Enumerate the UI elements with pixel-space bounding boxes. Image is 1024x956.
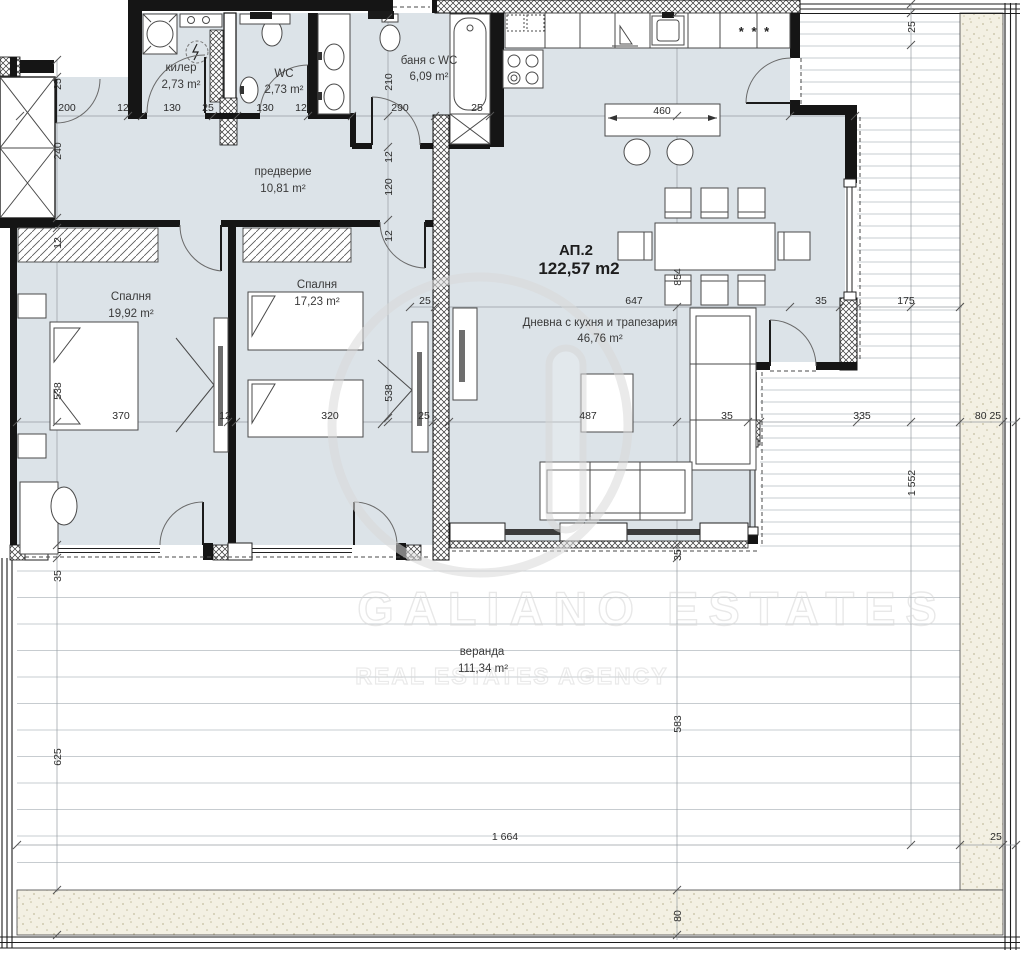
bath-vanity — [318, 14, 350, 114]
wardrobe-bedroom1 — [18, 228, 158, 262]
dim-label: 335 — [853, 410, 871, 422]
dim-label: 25 — [906, 21, 918, 33]
dim-label: 35 — [815, 295, 827, 307]
dim-label: 583 — [672, 715, 684, 733]
dim-label: 130 — [256, 102, 274, 114]
dim-label: 35 — [672, 549, 684, 561]
dim-label: 25 — [471, 102, 483, 114]
dim-label: 370 — [112, 410, 130, 422]
watermark-brand: GALIANO ESTATES — [357, 582, 947, 635]
watermark-tagline: REAL ESTATES AGENCY — [355, 663, 668, 689]
stair-shaft — [0, 77, 55, 228]
dim-label: 12 — [219, 410, 231, 422]
room-area-veranda: 111,34 m² — [458, 663, 508, 675]
room-area-bathroom: 6,09 m² — [410, 71, 449, 83]
room-name-storage: килер — [166, 62, 197, 74]
floor-plan-drawing: * * * — [0, 0, 1024, 956]
dim-label: 80 25 — [975, 410, 1001, 422]
dim-label: 25 — [990, 831, 1002, 843]
shower-box-icon — [450, 114, 490, 144]
room-name-veranda: веранда — [460, 646, 505, 658]
dim-label: 35 — [52, 570, 64, 582]
dim-label: 1 664 — [492, 831, 518, 843]
dim-label: 625 — [52, 748, 64, 766]
dim-label: 25 — [52, 78, 64, 90]
dim-label: 1 552 — [906, 470, 918, 496]
dim-label: 210 — [383, 73, 395, 91]
washing-machine-icon — [143, 14, 177, 54]
room-name-living: Дневна с кухня и трапезария — [523, 317, 678, 329]
cooktop-icon — [503, 50, 543, 88]
room-area-hallway: 10,81 m² — [260, 183, 306, 195]
dim-label: 200 — [58, 102, 76, 114]
dim-label: 538 — [52, 382, 64, 400]
dim-label: 647 — [625, 295, 643, 307]
dim-label: 120 — [383, 178, 395, 196]
wardrobe-bedroom2 — [243, 228, 351, 262]
bath-toilet-icon — [380, 14, 400, 51]
floor-plan-page: * * * — [0, 0, 1024, 956]
dim-label: 12 — [295, 102, 307, 114]
dim-label: 487 — [579, 410, 597, 422]
dim-label: 80 — [672, 910, 684, 922]
freezer-stars: * * * — [739, 24, 771, 39]
room-name-bedroom2: Спалня — [297, 279, 337, 291]
logo-one-bar — [549, 348, 583, 530]
room-area-wc: 2,73 m² — [265, 84, 304, 96]
bath-fixture — [368, 11, 394, 19]
wc-cistern-icon — [250, 12, 272, 19]
room-area-living: 46,76 m² — [577, 333, 623, 345]
dim-label: 538 — [383, 384, 395, 402]
dim-label: 290 — [391, 102, 409, 114]
room-area-storage: 2,73 m² — [162, 79, 201, 91]
room-name-bedroom1: Спалня — [111, 291, 151, 303]
room-name-bathroom: баня с WC — [401, 55, 458, 67]
storage-counter — [180, 14, 222, 27]
dim-label: 12 — [383, 230, 395, 242]
dim-label: 35 — [721, 410, 733, 422]
kitchen-sink-icon — [652, 12, 684, 45]
dim-label: 854 — [672, 268, 684, 286]
room-area-bedroom1: 19,92 m² — [108, 308, 154, 320]
bed-single-b — [248, 380, 363, 437]
dim-label: 130 — [163, 102, 181, 114]
room-name-hallway: предверие — [254, 166, 311, 178]
dim-label: 320 — [321, 410, 339, 422]
room-name-wc: WC — [274, 68, 293, 80]
living-tv-panel — [453, 308, 477, 400]
dim-label: 12 — [52, 237, 64, 249]
dim-label: 25 — [418, 410, 430, 422]
dim-label: 12 — [383, 151, 395, 163]
dim-label: 240 — [52, 142, 64, 160]
dim-label: 460 — [653, 105, 671, 117]
unit-area: 122,57 m2 — [538, 259, 619, 278]
dim-label: 175 — [897, 295, 915, 307]
dim-label: 25 — [202, 102, 214, 114]
room-area-bedroom2: 17,23 m² — [294, 296, 340, 308]
dim-label: 12 — [117, 102, 129, 114]
dim-label: 25 — [419, 295, 431, 307]
wc-sink-icon — [240, 77, 258, 103]
unit-code: АП.2 — [559, 242, 593, 259]
